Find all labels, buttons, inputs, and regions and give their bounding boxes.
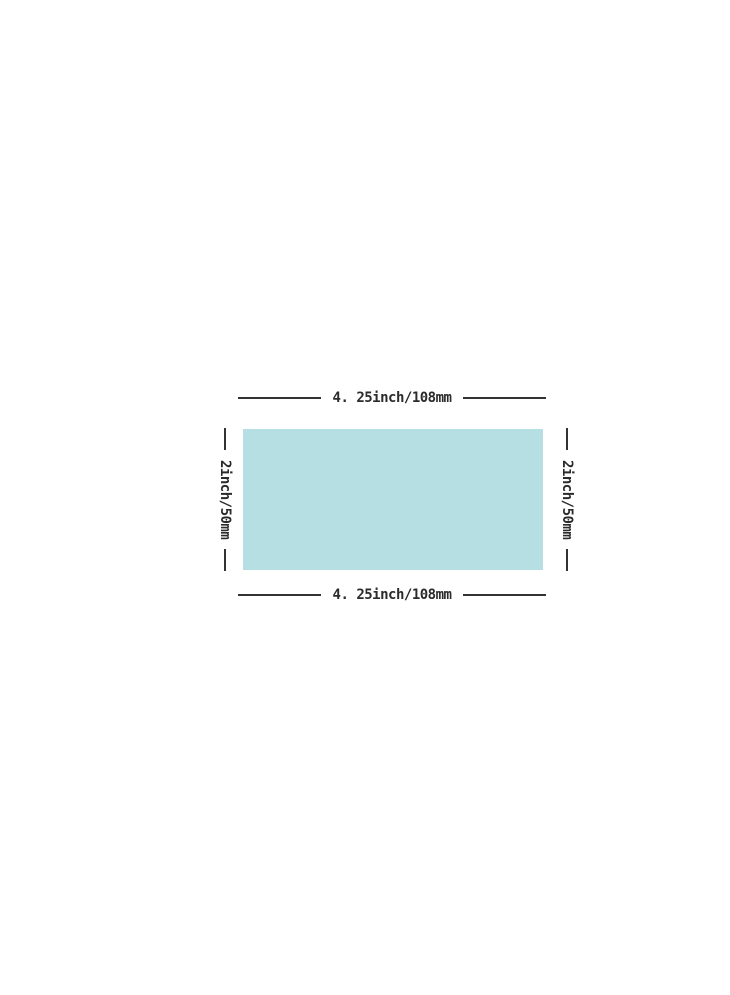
bottom-width-dimension: 4. 25inch/108mm	[238, 586, 546, 604]
bottom-width-label: 4. 25inch/108mm	[333, 588, 452, 602]
dimension-line-segment	[224, 428, 226, 450]
dimension-line-segment	[566, 549, 568, 571]
top-width-dimension: 4. 25inch/108mm	[238, 389, 546, 407]
right-height-label: 2inch/50mm	[560, 460, 574, 539]
left-height-dimension: 2inch/50mm	[215, 428, 235, 571]
product-dimension-diagram: 4. 25inch/108mm 2inch/50mm 2inch/50mm 4.…	[0, 0, 730, 995]
dimension-line-segment	[463, 594, 546, 596]
product-rectangle	[243, 429, 543, 570]
top-width-label: 4. 25inch/108mm	[333, 391, 452, 405]
dimension-line-segment	[463, 397, 546, 399]
dimension-line-segment	[566, 428, 568, 450]
dimension-line-segment	[238, 397, 321, 399]
left-height-label: 2inch/50mm	[218, 460, 232, 539]
dimension-line-segment	[238, 594, 321, 596]
dimension-line-segment	[224, 549, 226, 571]
right-height-dimension: 2inch/50mm	[557, 428, 577, 571]
